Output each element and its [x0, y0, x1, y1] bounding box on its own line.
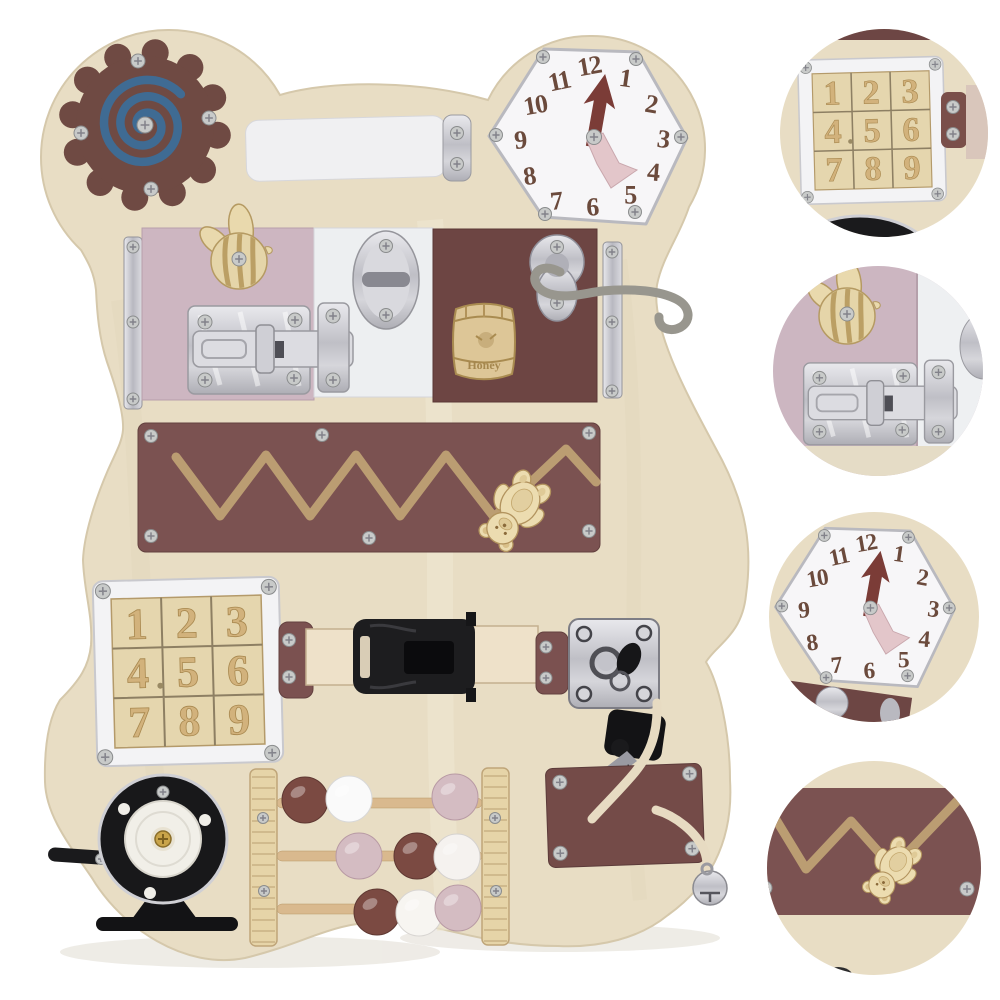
svg-text:9: 9: [903, 149, 921, 187]
svg-text:5: 5: [863, 112, 881, 150]
svg-text:3: 3: [901, 72, 919, 110]
svg-text:4: 4: [824, 113, 842, 151]
svg-text:8: 8: [864, 150, 882, 188]
svg-text:5: 5: [176, 647, 199, 697]
svg-text:6: 6: [902, 111, 920, 149]
svg-text:8: 8: [178, 696, 201, 746]
svg-text:4: 4: [126, 649, 149, 699]
svg-text:2: 2: [175, 598, 198, 648]
svg-text:6: 6: [226, 646, 249, 696]
svg-text:7: 7: [128, 698, 151, 748]
svg-text:1: 1: [125, 600, 148, 650]
svg-text:3: 3: [225, 597, 248, 647]
svg-text:Honey: Honey: [467, 358, 500, 372]
svg-text:2: 2: [862, 73, 880, 111]
svg-text:1: 1: [823, 74, 841, 112]
svg-text:7: 7: [825, 151, 843, 189]
svg-text:9: 9: [228, 695, 251, 745]
